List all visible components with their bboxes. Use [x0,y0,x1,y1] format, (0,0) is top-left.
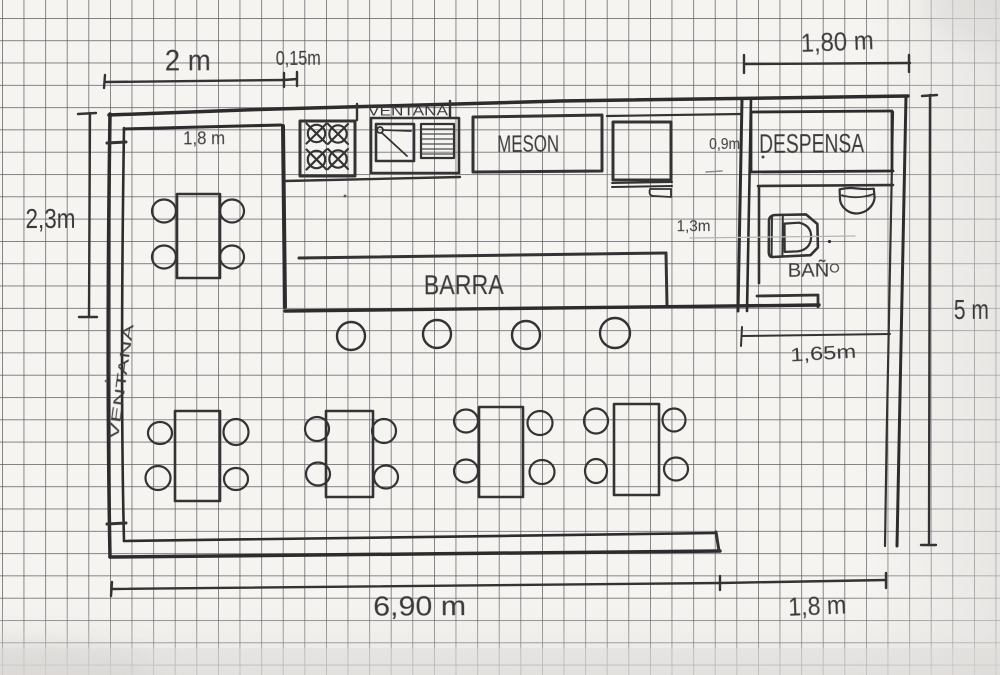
svg-text:5 m: 5 m [954,294,989,325]
svg-text:6,90 m: 6,90 m [373,590,466,621]
svg-text:VENTANA: VENTANA [368,103,448,118]
svg-text:1,8 m: 1,8 m [788,589,847,621]
svg-text:2 m: 2 m [165,44,211,77]
svg-text:1,3m: 1,3m [676,218,710,235]
svg-text:1,65m: 1,65m [790,342,857,367]
svg-text:0,15m: 0,15m [276,48,321,70]
svg-text:0,9m: 0,9m [709,136,740,153]
svg-text:BARRA: BARRA [424,269,504,300]
svg-text:1,80 m: 1,80 m [800,25,874,58]
svg-text:DESPENSA: DESPENSA [759,128,864,158]
svg-text:1,8 m: 1,8 m [183,128,225,148]
svg-text:MESON: MESON [497,131,559,158]
svg-text:2,3m: 2,3m [25,203,75,234]
